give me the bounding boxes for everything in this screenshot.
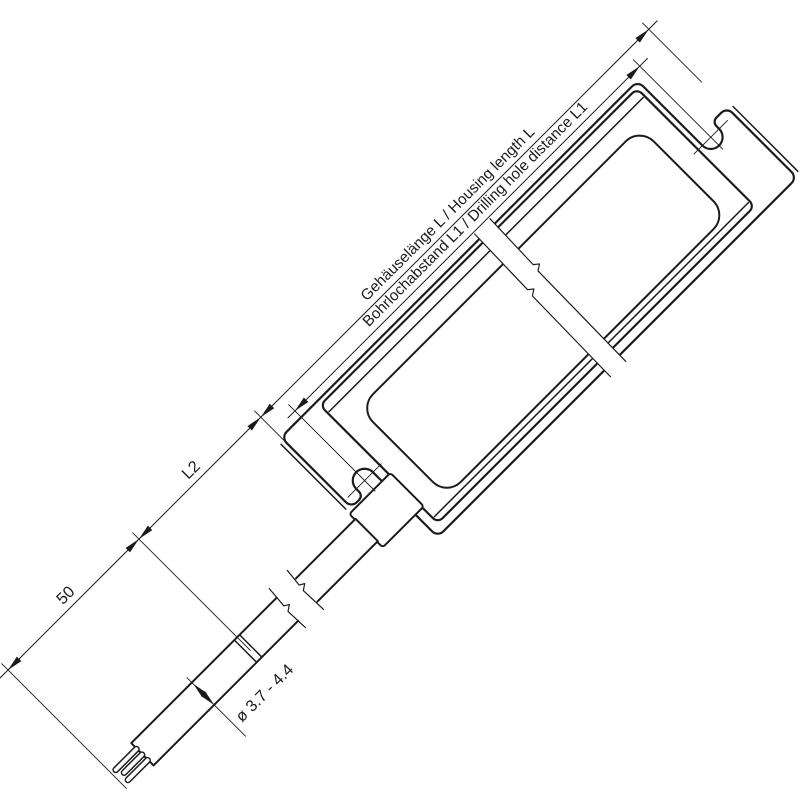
technical-drawing-page: Gehäuselänge L / Housing length L Bohrlo… xyxy=(0,0,800,800)
housing-break xyxy=(471,217,631,377)
label-l2: L2 xyxy=(178,457,204,483)
label-strip-length: 50 xyxy=(53,583,79,609)
lid-line-bottom xyxy=(434,203,748,517)
ext-line-housing-right xyxy=(643,23,702,82)
dimension-line-l1 xyxy=(288,58,647,417)
left-tab-thickness-line xyxy=(281,444,346,509)
cable xyxy=(131,519,378,766)
ext-line-sheath-junction xyxy=(133,533,251,651)
ext-line-housing-left xyxy=(255,411,289,445)
led-driver-dimension-drawing: Gehäuselänge L / Housing length L Bohrlo… xyxy=(0,0,800,800)
base-plate-outline xyxy=(281,49,797,565)
ext-line-right-hole xyxy=(633,60,722,149)
ext-line-wire-tip xyxy=(2,664,127,789)
right-tab-thickness-line xyxy=(733,107,798,172)
